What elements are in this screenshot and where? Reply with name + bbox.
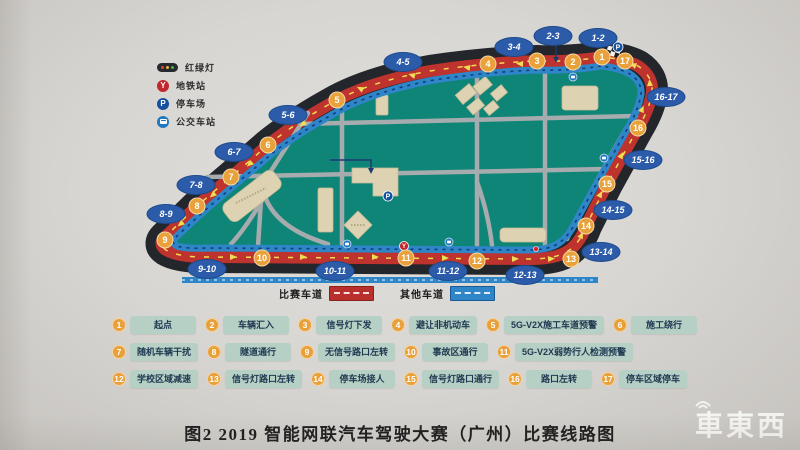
lane-legend: 比赛车道 其他车道 (279, 286, 495, 301)
segment-badge: 4-5 (384, 53, 422, 72)
waypoint-marker: 10 (254, 250, 270, 266)
checkpoint-row: 7随机车辆干扰8隧道通行9无信号路口左转10事故区通行115G-V2X弱势行人检… (112, 343, 697, 360)
checkpoint-label: 停车区域停车 (619, 370, 687, 388)
checkpoint-item: 17停车区域停车 (601, 370, 687, 388)
waypoint-marker: 5 (329, 92, 345, 108)
waypoint-marker: 17 (617, 53, 633, 69)
checkpoint-number: 10 (404, 345, 418, 359)
segment-badge: 15-16 (624, 151, 662, 170)
waypoint-marker: 1 (594, 49, 610, 65)
checkpoint-item: 10事故区通行 (404, 343, 488, 361)
segment-badge: 2-3 (534, 27, 572, 46)
segment-badge: 13-14 (582, 243, 620, 262)
segment-badge: 6-7 (215, 143, 253, 162)
metro-icon: Y (157, 80, 169, 92)
checkpoint-number: 16 (508, 372, 522, 386)
watermark-logo: 車東西 (695, 404, 788, 444)
svg-text:5: 5 (334, 95, 339, 105)
legend-label: 地铁站 (176, 79, 206, 92)
svg-text:P: P (386, 194, 391, 201)
checkpoint-label: 施工绕行 (631, 316, 697, 334)
legend-label: 公交车站 (176, 115, 216, 128)
light-icon (534, 247, 539, 252)
checkpoint-number: 3 (298, 318, 312, 332)
page-photo: PPY 1-22-33-44-55-66-77-88-99-1010-1111-… (0, 0, 800, 450)
svg-text:12: 12 (472, 256, 482, 266)
svg-text:15: 15 (602, 179, 612, 189)
segment-badge: 8-9 (147, 205, 185, 224)
segment-badge: 10-11 (316, 262, 354, 281)
checkpoint-item: 2车辆汇入 (205, 316, 289, 334)
checkpoint-number: 9 (300, 345, 314, 359)
segment-badge: 12-13 (506, 266, 544, 285)
bus-icon (343, 240, 351, 248)
checkpoint-number: 5 (486, 318, 500, 332)
map-legend: 红绿灯 Y 地铁站 P 停车场 公交车站 (157, 61, 216, 128)
figure-caption: 图2 2019 智能网联汽车驾驶大赛（广州）比赛线路图 (0, 420, 800, 445)
checkpoint-number: 11 (497, 345, 511, 359)
checkpoint-label: 信号灯下发 (316, 316, 382, 334)
svg-text:13-14: 13-14 (589, 247, 612, 257)
waypoint-marker: 11 (398, 250, 414, 266)
waypoint-marker: 2 (565, 54, 581, 70)
waypoint-marker: 7 (223, 169, 239, 185)
svg-text:13: 13 (566, 254, 576, 264)
checkpoint-number: 6 (613, 318, 627, 332)
waypoint-marker: 15 (599, 176, 615, 192)
checkpoint-number: 8 (207, 345, 221, 359)
waypoint-marker: 16 (630, 120, 646, 136)
waypoint-marker: 13 (563, 251, 579, 267)
bus-icon (445, 238, 453, 246)
checkpoint-item: 4避让非机动车 (391, 316, 477, 334)
bus-icon (157, 116, 169, 128)
segment-badge: 3-4 (495, 38, 533, 57)
traffic-light-icon (157, 63, 178, 72)
svg-text:15-16: 15-16 (631, 155, 655, 165)
checkpoint-item: 9无信号路口左转 (300, 343, 395, 361)
svg-text:14: 14 (581, 221, 591, 231)
svg-text:10: 10 (257, 253, 267, 263)
legend-label: 红绿灯 (185, 61, 215, 74)
svg-text:2: 2 (570, 57, 575, 67)
waypoint-marker: 8 (189, 198, 205, 214)
svg-text:Y: Y (402, 244, 406, 250)
svg-text:14-15: 14-15 (601, 205, 625, 215)
parking-icon: P (157, 98, 169, 110)
svg-text:4-5: 4-5 (395, 57, 410, 67)
checkpoint-label: 学校区域减速 (130, 370, 198, 388)
checkpoint-label: 信号灯路口左转 (225, 370, 302, 388)
segment-badge: 11-12 (429, 262, 467, 281)
legend-row-parking: P 停车场 (157, 97, 216, 110)
checkpoint-number: 12 (112, 372, 126, 386)
svg-text:16: 16 (633, 123, 643, 133)
checkpoint-item: 14停车场接人 (311, 370, 395, 388)
svg-text:1: 1 (599, 52, 604, 62)
svg-text:5-6: 5-6 (281, 110, 295, 120)
checkpoint-item: 15信号灯路口通行 (404, 370, 499, 388)
checkpoint-item: 13信号灯路口左转 (207, 370, 302, 388)
svg-text:7: 7 (228, 172, 233, 182)
waypoint-marker: 9 (157, 232, 173, 248)
checkpoint-label: 停车场接人 (329, 370, 395, 388)
checkpoint-number: 4 (391, 318, 405, 332)
checkpoint-item: 12学校区域减速 (112, 370, 198, 388)
waypoint-marker: 14 (578, 218, 594, 234)
waypoint-marker: 4 (480, 56, 496, 72)
checkpoint-label: 起点 (130, 316, 196, 334)
segment-badge: 5-6 (269, 106, 307, 125)
checkpoint-label: 随机车辆干扰 (130, 343, 198, 361)
segment-badge: 9-10 (188, 260, 226, 279)
svg-text:16-17: 16-17 (654, 92, 678, 102)
checkpoint-number: 17 (601, 372, 615, 386)
checkpoint-number: 2 (205, 318, 219, 332)
checkpoint-number: 7 (112, 345, 126, 359)
segment-badge: 14-15 (594, 201, 632, 220)
checkpoint-item: 1起点 (112, 316, 196, 334)
svg-text:7-8: 7-8 (189, 180, 202, 190)
metro-icon: Y (400, 242, 409, 251)
legend-label: 停车场 (176, 97, 206, 110)
checkpoint-item: 115G-V2X弱势行人检测预警 (497, 343, 633, 361)
checkpoint-item: 16路口左转 (508, 370, 592, 388)
checkpoint-row: 12学校区域减速13信号灯路口左转14停车场接人15信号灯路口通行16路口左转1… (112, 370, 697, 387)
checkpoint-row: 1起点2车辆汇入3信号灯下发4避让非机动车55G-V2X施工车道预警6施工绕行 (112, 316, 697, 333)
checkpoint-item: 55G-V2X施工车道预警 (486, 316, 604, 334)
checkpoint-number: 13 (207, 372, 221, 386)
parking-icon: P (613, 42, 623, 52)
svg-text:12-13: 12-13 (513, 270, 536, 280)
svg-text:11: 11 (401, 253, 411, 263)
bus-icon (569, 73, 577, 81)
svg-text:8: 8 (194, 201, 199, 211)
checkpoint-number: 14 (311, 372, 325, 386)
bus-icon (600, 154, 608, 162)
other-lane-label: 其他车道 (400, 286, 444, 301)
legend-row-metro: Y 地铁站 (157, 79, 216, 92)
svg-text:2-3: 2-3 (545, 31, 559, 41)
checkpoint-label: 5G-V2X弱势行人检测预警 (515, 343, 633, 361)
checkpoint-label: 信号灯路口通行 (422, 370, 499, 388)
svg-text:3-4: 3-4 (507, 42, 520, 52)
svg-text:10-11: 10-11 (324, 266, 346, 276)
other-lane-swatch (450, 286, 495, 301)
checkpoint-label: 事故区通行 (422, 343, 488, 361)
segment-badge: 1-2 (579, 29, 617, 48)
checkpoint-number: 1 (112, 318, 126, 332)
svg-text:17: 17 (620, 56, 630, 66)
svg-text:P: P (616, 45, 621, 52)
svg-text:4: 4 (485, 59, 490, 69)
checkpoint-label: 隧道通行 (225, 343, 291, 361)
checkpoint-item: 7随机车辆干扰 (112, 343, 198, 361)
svg-text:8-9: 8-9 (159, 209, 172, 219)
legend-row-traffic-light: 红绿灯 (157, 61, 216, 74)
waypoint-marker: 12 (469, 253, 485, 269)
parking-icon: P (383, 191, 393, 201)
svg-text:9: 9 (162, 235, 167, 245)
race-lane-label: 比赛车道 (279, 286, 323, 301)
svg-text:9-10: 9-10 (198, 264, 216, 274)
waypoint-marker: 3 (529, 53, 545, 69)
svg-text:11-12: 11-12 (437, 266, 459, 276)
svg-text:6-7: 6-7 (227, 147, 241, 157)
checkpoint-label: 5G-V2X施工车道预警 (504, 316, 604, 334)
legend-row-bus: 公交车站 (157, 115, 216, 128)
svg-text:3: 3 (534, 56, 539, 66)
svg-text:1-2: 1-2 (591, 33, 604, 43)
svg-text:6: 6 (265, 140, 270, 150)
checkpoint-item: 3信号灯下发 (298, 316, 382, 334)
segment-badge: 7-8 (177, 176, 215, 195)
checkpoint-item: 8隧道通行 (207, 343, 291, 361)
checkpoint-label: 车辆汇入 (223, 316, 289, 334)
checkpoint-label: 避让非机动车 (409, 316, 477, 334)
waypoint-marker: 6 (260, 137, 276, 153)
checkpoint-item: 6施工绕行 (613, 316, 697, 334)
checkpoint-number: 15 (404, 372, 418, 386)
checkpoint-label: 路口左转 (526, 370, 592, 388)
race-lane-swatch (329, 286, 374, 301)
checkpoint-label: 无信号路口左转 (318, 343, 395, 361)
segment-badge: 16-17 (647, 88, 685, 107)
checkpoint-list: 1起点2车辆汇入3信号灯下发4避让非机动车55G-V2X施工车道预警6施工绕行7… (112, 316, 697, 397)
